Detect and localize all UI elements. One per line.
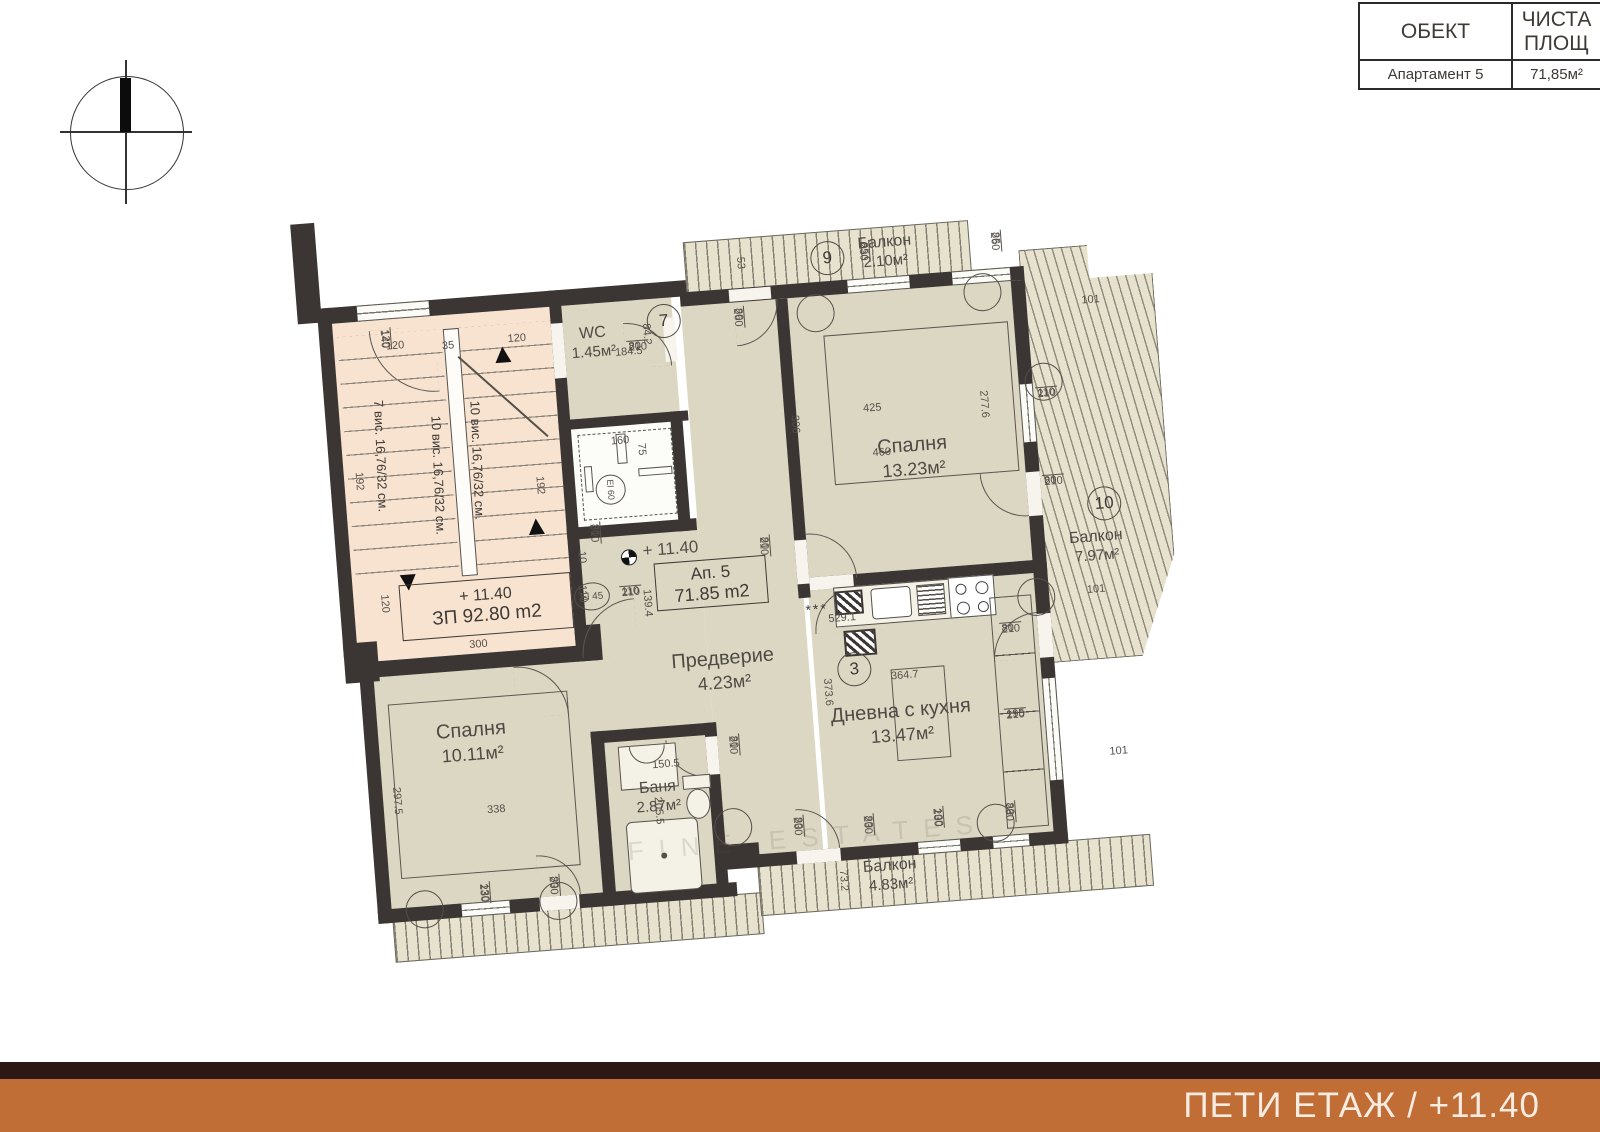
dimension-label: 338	[487, 804, 506, 816]
dimension-label: 101	[1109, 745, 1128, 757]
kitchen-stars: ***	[805, 600, 829, 618]
north-compass	[70, 66, 200, 216]
north-arrow	[120, 78, 131, 132]
dimension-label: 110	[576, 585, 588, 603]
burner-icon	[955, 583, 967, 595]
dimension-label: 75	[635, 443, 647, 456]
dimension-label: 120	[378, 594, 390, 613]
dimension-label: 101	[1087, 584, 1106, 596]
title-block-header-row: ОБЕКТ ЧИСТА ПЛОЩ	[1360, 4, 1600, 59]
dimension-label: 373.6	[821, 678, 834, 706]
dimension-label: 84.2	[640, 323, 653, 345]
dimension-label: 277.6	[977, 390, 990, 418]
dimension-label: 120	[386, 340, 405, 352]
burner-icon	[956, 601, 970, 615]
apartment-name: Апартамент 5	[1360, 59, 1513, 88]
stair-arrow-up-1	[494, 346, 511, 363]
dimension-label: 150.5	[652, 758, 680, 771]
title-block-value-row: Апартамент 5 71,85м²	[1360, 59, 1600, 88]
floor-plan: 7 вис. 16,76/32 см. 10 вис. 16,76/32 см.…	[300, 181, 1214, 976]
dimension-label: 205.5	[652, 797, 665, 825]
dimension-label: 306	[788, 415, 800, 434]
dimension-label: 139.4	[641, 589, 654, 617]
level-marker-text: + 11.40	[642, 538, 699, 559]
dimension-label: 160	[611, 435, 630, 447]
dimension-label: 364.7	[891, 669, 919, 682]
dimension-label: 73.2	[837, 869, 850, 891]
dimension-label: 297.5	[390, 787, 403, 815]
header-object: ОБЕКТ	[1360, 4, 1513, 59]
dimension-label: 120	[507, 333, 526, 345]
floor-title: ПЕТИ ЕТАЖ / +11.40	[1183, 1086, 1540, 1126]
dimension-label: 101	[1081, 294, 1100, 306]
title-block-table: ОБЕКТ ЧИСТА ПЛОЩ Апартамент 5 71,85м²	[1358, 2, 1600, 90]
kitchen-dishrack	[916, 583, 946, 616]
dimension-label: 35	[442, 340, 455, 352]
dimension-label: 53	[734, 256, 746, 269]
header-net-area: ЧИСТА ПЛОЩ	[1513, 4, 1600, 59]
dimension-label: 192	[353, 472, 365, 491]
dimension-label: 425	[863, 402, 882, 414]
dimension-label: 10	[575, 551, 587, 564]
burner-icon	[975, 581, 989, 595]
dimension-label: 300	[469, 639, 488, 651]
dimension-label: 184.5	[615, 346, 643, 359]
footer-stripe	[0, 1062, 1600, 1079]
kitchen-sink	[870, 586, 912, 620]
burner-icon	[977, 601, 989, 613]
stair-arrow-up-2	[528, 518, 545, 535]
dimension-label: 460	[872, 447, 891, 459]
apartment-number-box: Ап. 5 71.85 m2	[654, 555, 769, 612]
apartment-net-area: 71,85м²	[1513, 59, 1600, 88]
dimension-label: 192	[533, 476, 545, 495]
kitchen-stove	[948, 574, 997, 618]
footer-bar: ПЕТИ ЕТАЖ / +11.40	[0, 1079, 1600, 1132]
dimension-label: 529.1	[828, 612, 856, 625]
